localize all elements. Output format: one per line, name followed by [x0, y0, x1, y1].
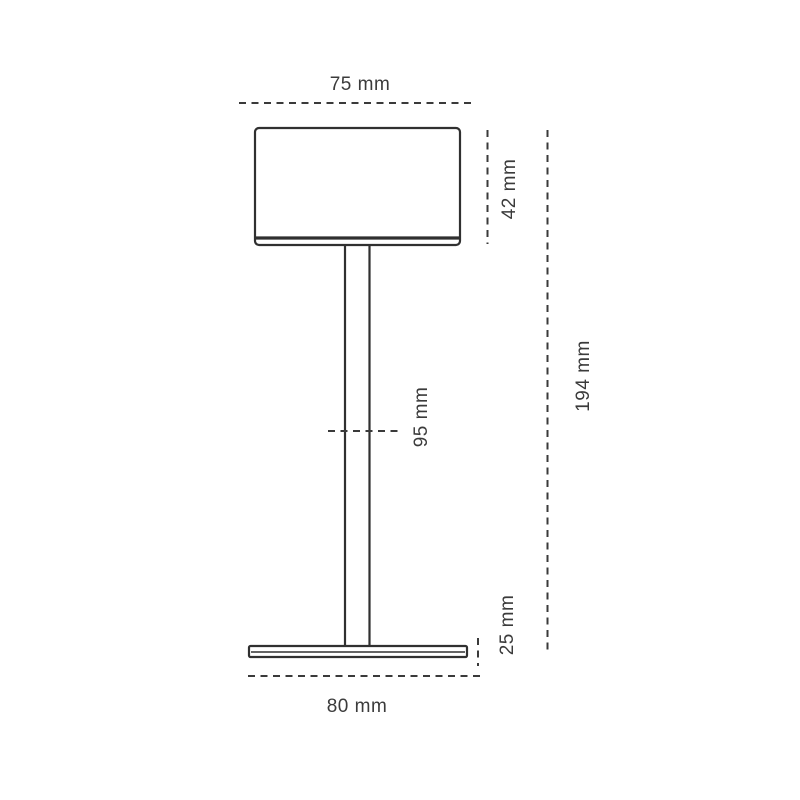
dim-label-total-height: 194 mm: [573, 340, 594, 412]
dim-label-stem-height: 95 mm: [411, 387, 432, 448]
dim-label-shade-width: 75 mm: [330, 74, 391, 95]
dim-label-base-width: 80 mm: [327, 696, 388, 717]
technical-drawing-canvas: 75 mm 42 mm 194 mm 95 mm 25 mm 80 mm: [0, 0, 800, 800]
dim-label-shade-height: 42 mm: [499, 159, 520, 220]
lamp-shade-outline: [255, 128, 460, 245]
lamp-outline-group: [249, 128, 467, 657]
dim-label-base-height: 25 mm: [497, 595, 518, 656]
lamp-dimension-diagram: 75 mm 42 mm 194 mm 95 mm 25 mm 80 mm: [0, 0, 800, 800]
